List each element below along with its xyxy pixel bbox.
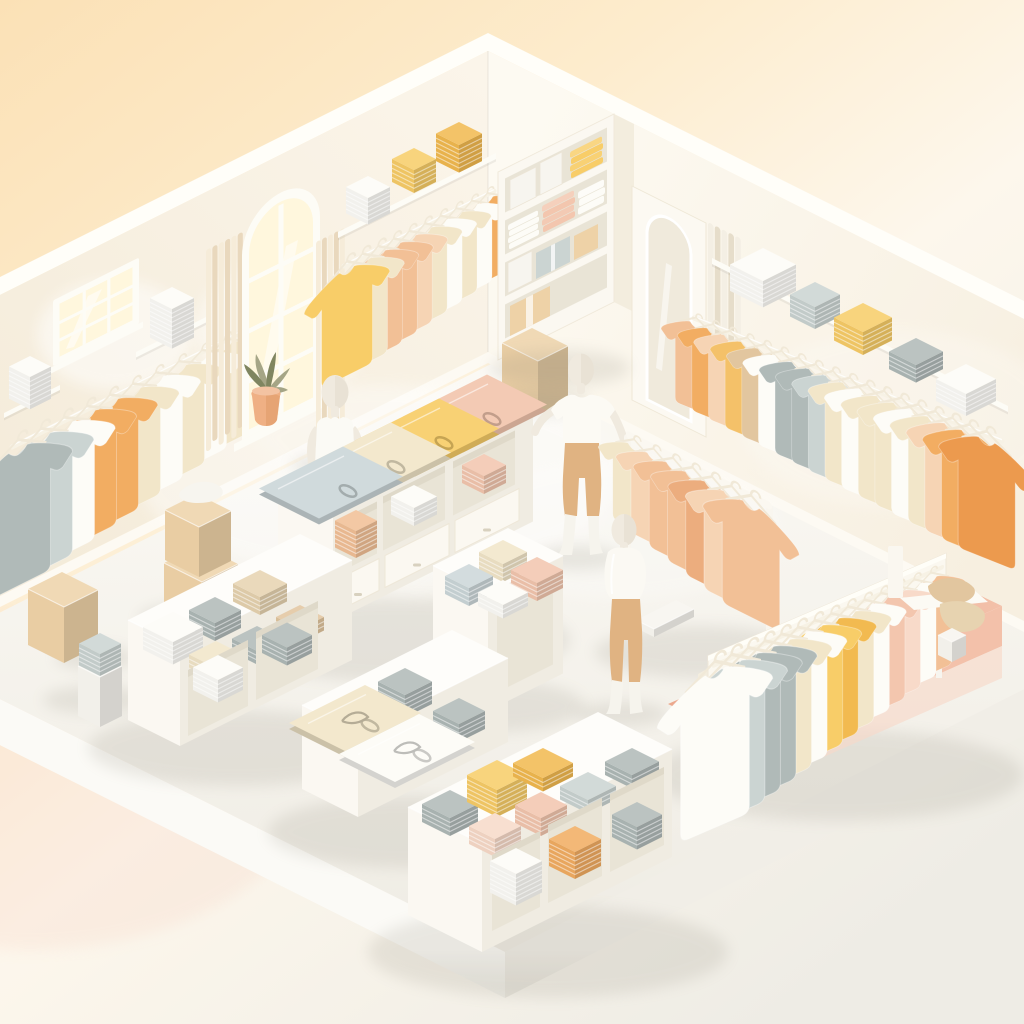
drawer-handle [413,564,421,567]
curtain-fold [225,238,230,436]
stand-base [938,628,966,662]
window-mullion [83,291,86,346]
curtain-fold [212,244,217,442]
store-scene [0,0,1024,1024]
towel-stack [9,356,51,409]
store-illustration [0,0,1024,1024]
shelving-unit-side [614,114,634,312]
pot-rim [252,387,280,396]
drawer-handle [483,529,491,532]
curtain-fold [231,235,236,440]
mannequin-neck [577,383,585,394]
box-tape [526,295,533,329]
curtain-fold [206,247,211,452]
window-mullion [107,278,110,333]
stand-post [888,546,903,598]
package-strap [551,244,555,272]
drawer-handle [354,593,362,596]
box-stack-upper [165,494,231,577]
shadow [490,350,630,386]
towel-stack [150,287,194,349]
mannequin-neck [331,406,339,418]
curtain-fold [219,241,224,446]
